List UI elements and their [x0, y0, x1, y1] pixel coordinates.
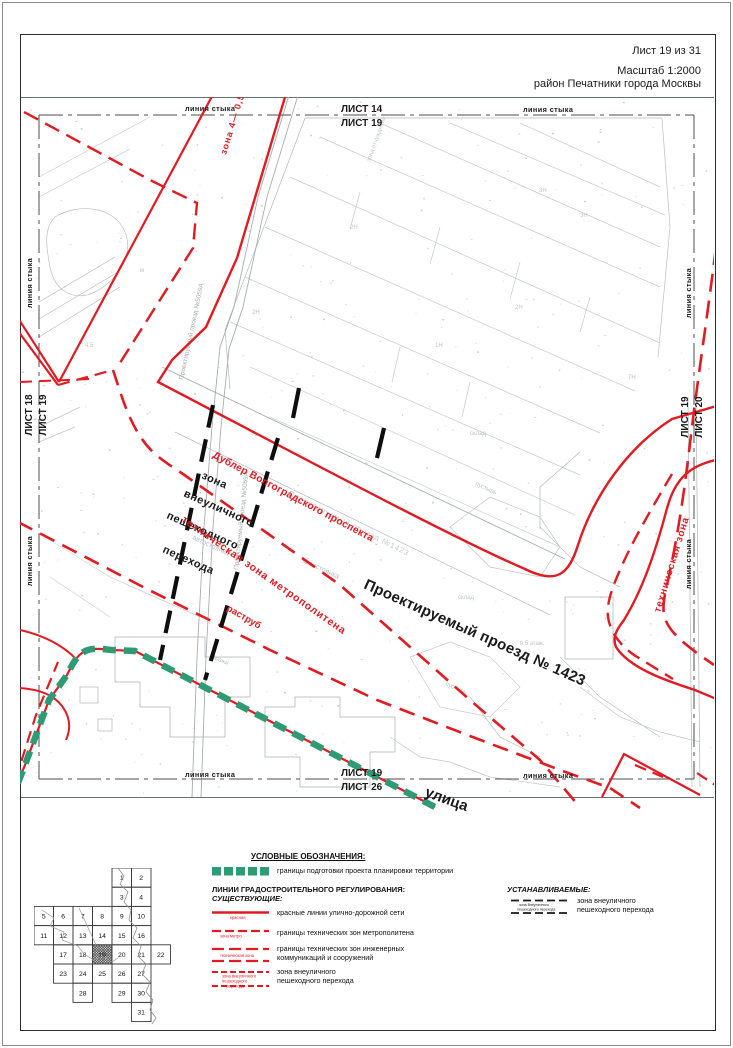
svg-text:3Н: 3Н — [580, 213, 588, 219]
svg-text:ЛИСТ 18: ЛИСТ 18 — [24, 394, 35, 436]
svg-text:5: 5 — [42, 914, 46, 921]
svg-text:ЛИСТ 19: ЛИСТ 19 — [341, 118, 383, 129]
svg-text:техническая зона: техническая зона — [220, 953, 255, 958]
svg-text:28: 28 — [79, 990, 87, 997]
svg-text:4: 4 — [139, 894, 143, 901]
svg-text:линия стыка: линия стыка — [684, 538, 693, 589]
svg-text:7Н: 7Н — [628, 375, 636, 381]
svg-text:линия стыка: линия стыка — [185, 770, 236, 779]
svg-text:1: 1 — [120, 875, 124, 882]
svg-text:2Н: 2Н — [252, 310, 260, 316]
svg-text:перехода: перехода — [226, 984, 245, 989]
svg-text:1Н: 1Н — [435, 343, 443, 349]
svg-text:Проектируемый проезд № 1423: Проектируемый проезд № 1423 — [361, 576, 588, 689]
svg-text:линия стыка: линия стыка — [523, 105, 574, 114]
svg-text:раструб: раструб — [225, 603, 263, 632]
svg-text:11: 11 — [40, 933, 47, 940]
svg-text:м: м — [140, 268, 144, 274]
svg-text:6: 6 — [61, 914, 65, 921]
svg-text:зона метро: зона метро — [220, 934, 242, 939]
svg-text:линия стыка: линия стыка — [25, 535, 34, 586]
svg-text:линия стыка: линия стыка — [523, 771, 574, 780]
svg-text:перехода: перехода — [161, 544, 216, 577]
svg-text:31: 31 — [137, 1010, 145, 1017]
svg-text:9: 9 — [120, 914, 124, 921]
svg-text:зона Внеуличного: зона Внеуличного — [519, 903, 549, 907]
svg-text:склад: склад — [470, 431, 487, 437]
svg-text:2Н: 2Н — [515, 305, 523, 311]
svg-text:ЛИСТ 19: ЛИСТ 19 — [680, 396, 691, 438]
svg-text:14: 14 — [98, 933, 106, 940]
svg-text:пешеходного перехода: пешеходного перехода — [517, 908, 555, 912]
svg-text:29: 29 — [118, 990, 126, 997]
svg-text:20: 20 — [118, 952, 126, 959]
svg-text:3: 3 — [120, 894, 124, 901]
svg-text:линия стыка: линия стыка — [684, 267, 693, 318]
svg-text:25: 25 — [98, 971, 106, 978]
svg-text:улица: улица — [423, 784, 471, 815]
svg-text:2: 2 — [139, 875, 143, 882]
svg-text:2Н: 2Н — [350, 225, 358, 231]
svg-text:линия стыка: линия стыка — [25, 257, 34, 308]
svg-text:17: 17 — [59, 952, 67, 959]
svg-text:13: 13 — [79, 933, 87, 940]
svg-text:ЛИСТ 19: ЛИСТ 19 — [341, 768, 383, 779]
svg-text:22: 22 — [157, 952, 165, 959]
svg-text:ЛИСТ 26: ЛИСТ 26 — [341, 782, 383, 793]
svg-text:27: 27 — [137, 971, 145, 978]
svg-text:24: 24 — [79, 971, 87, 978]
svg-text:4.5: 4.5 — [85, 343, 94, 349]
svg-text:16: 16 — [137, 933, 145, 940]
svg-text:Дублер Волгоградского проспект: Дублер Волгоградского проспекта — [211, 449, 376, 544]
svg-text:ЛИСТ 19: ЛИСТ 19 — [38, 394, 49, 436]
svg-text:30: 30 — [137, 990, 145, 997]
svg-text:красная: красная — [230, 915, 246, 920]
svg-text:склад: склад — [458, 595, 475, 601]
svg-text:ЛИСТ 20: ЛИСТ 20 — [694, 396, 705, 438]
svg-text:пустырь: пустырь — [474, 481, 497, 496]
svg-text:линия стыка: линия стыка — [185, 104, 236, 113]
svg-text:ЛИСТ 14: ЛИСТ 14 — [341, 104, 383, 115]
svg-text:3Н: 3Н — [539, 188, 547, 194]
svg-text:23: 23 — [59, 971, 67, 978]
svg-text:8: 8 — [100, 914, 104, 921]
svg-text:10: 10 — [137, 914, 145, 921]
svg-text:15: 15 — [118, 933, 126, 940]
svg-text:26: 26 — [118, 971, 126, 978]
